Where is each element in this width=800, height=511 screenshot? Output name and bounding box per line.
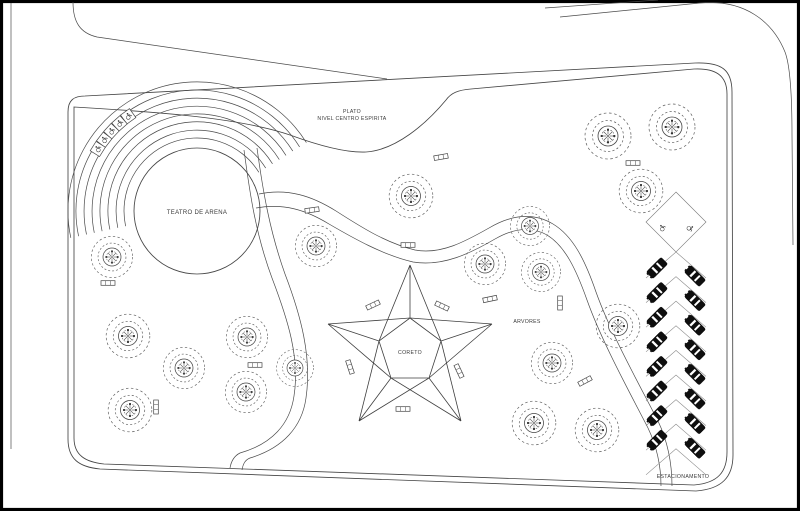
- theater-label: TEATRO DE ARENA: [167, 210, 227, 216]
- plateau-label-line1: PLATO: [343, 109, 361, 115]
- site-plan-page: PLATO NIVEL CENTRO ESPIRITA TEATRO DE AR…: [0, 0, 800, 511]
- bandstand-star: [328, 265, 492, 421]
- accessible-stall-diamond: [646, 192, 706, 252]
- car: [645, 429, 667, 451]
- park-boundary-outer: [68, 63, 733, 491]
- bench: [154, 400, 159, 414]
- bench: [558, 296, 563, 310]
- bench: [401, 243, 415, 248]
- tree-symbol: [596, 304, 640, 348]
- car: [645, 306, 667, 328]
- park-boundary-inner-plateau-curve: [74, 69, 727, 485]
- site-plan-drawing: PLATO NIVEL CENTRO ESPIRITA TEATRO DE AR…: [0, 0, 800, 511]
- tree-symbol: [531, 342, 572, 383]
- bench: [305, 207, 320, 214]
- parking-area: [645, 192, 706, 475]
- tree-symbol: [163, 347, 204, 388]
- bench: [435, 301, 450, 311]
- tree-symbol: [510, 206, 549, 245]
- tree-symbol: [585, 113, 631, 159]
- bandstand-pentagon: [379, 318, 441, 378]
- bench: [626, 161, 640, 166]
- tree-symbol: [226, 316, 267, 357]
- tree-symbol: [575, 408, 619, 452]
- tree-symbol: [389, 174, 433, 218]
- tree-symbol: [106, 314, 150, 358]
- tree-symbol: [521, 252, 560, 291]
- car: [645, 282, 667, 304]
- bench: [101, 281, 115, 286]
- accessible-seating-row: [90, 109, 136, 157]
- tree-symbol: [512, 401, 556, 445]
- car: [645, 331, 667, 353]
- bench: [248, 363, 262, 368]
- car: [645, 405, 667, 427]
- car: [645, 356, 667, 378]
- walkway-paths: [230, 148, 672, 486]
- plateau-label-line2: NIVEL CENTRO ESPIRITA: [317, 116, 386, 122]
- parking-label: ESTACIONAMENTO: [657, 474, 709, 480]
- tree-symbol: [295, 225, 336, 266]
- trees-area-label: ARVORES: [513, 319, 541, 325]
- tree-symbol: [225, 371, 266, 412]
- bench: [483, 295, 498, 302]
- car: [645, 380, 667, 402]
- park-boundary: [68, 63, 733, 491]
- walkway-west-edge-1: [230, 150, 296, 468]
- bench: [434, 154, 449, 161]
- tree-symbol: [619, 169, 663, 213]
- tree-symbol: [91, 236, 132, 277]
- car: [645, 257, 667, 279]
- top-left-street-edge: [73, 2, 387, 79]
- walkway-main-edge-1: [259, 192, 672, 486]
- bench: [578, 376, 593, 387]
- bench: [396, 407, 410, 412]
- tree-symbol: [108, 388, 152, 432]
- parked-cars: [645, 257, 705, 459]
- walkway-west-edge-2: [242, 148, 308, 470]
- bench: [366, 300, 381, 310]
- tree-symbol: [464, 243, 505, 284]
- bench: [346, 360, 355, 375]
- accessible-stall-icon: [686, 224, 694, 232]
- accessible-stall-icon: [658, 223, 666, 231]
- street-lines: [11, 0, 793, 449]
- tree-symbol: [649, 104, 695, 150]
- bench: [454, 364, 464, 379]
- tree-symbol: [277, 350, 314, 387]
- bandstand-label: CORETO: [398, 350, 422, 356]
